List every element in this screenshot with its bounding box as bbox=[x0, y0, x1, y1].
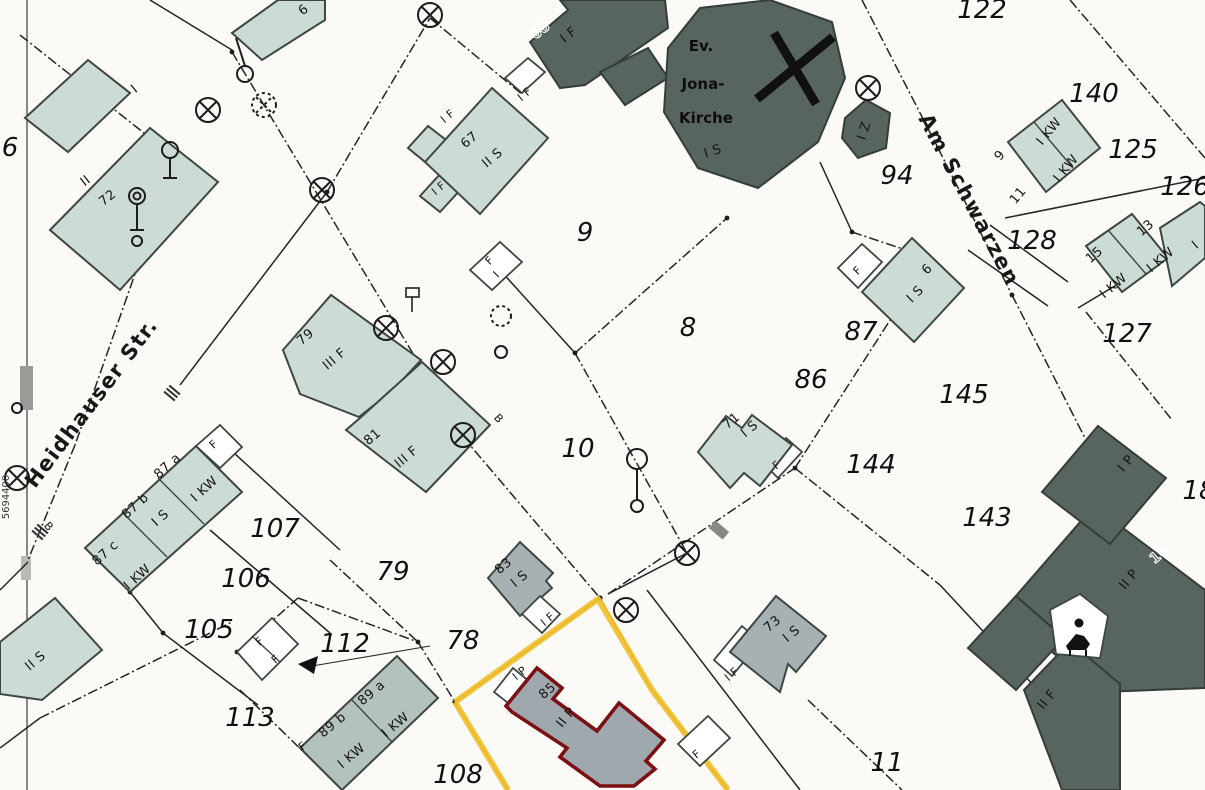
map-label-p6-edge: 6 bbox=[2, 133, 19, 163]
map-label-p126: 126 bbox=[1160, 172, 1205, 202]
map-label-p9: 9 bbox=[577, 218, 594, 248]
map-label-p108: 108 bbox=[433, 760, 483, 790]
map-label-p87: 87 bbox=[844, 317, 878, 347]
map-label-grid-coordinate: 5694400 bbox=[1, 475, 12, 520]
map-label-p107: 107 bbox=[250, 514, 300, 544]
map-label-p86: 86 bbox=[794, 365, 827, 395]
map-label-p112: 112 bbox=[320, 629, 370, 659]
map-label-p11: 11 bbox=[870, 748, 903, 778]
map-label-p94: 94 bbox=[880, 161, 913, 191]
map-label-p125: 125 bbox=[1108, 135, 1158, 165]
cadastral-map: 1221401251261281279498868714514414310107… bbox=[0, 0, 1205, 790]
map-label-church-jona: Jona- bbox=[681, 75, 725, 93]
map-label-p145: 145 bbox=[939, 380, 989, 410]
map-canvas: 1221401251261281279498868714514414310107… bbox=[0, 0, 1205, 790]
map-label-church-ev: Ev. bbox=[689, 37, 714, 55]
map-label-p144: 144 bbox=[846, 450, 896, 480]
map-label-p113: 113 bbox=[225, 703, 275, 733]
map-label-p127: 127 bbox=[1102, 319, 1152, 349]
map-label-p10: 10 bbox=[561, 434, 594, 464]
map-label-p106: 106 bbox=[221, 564, 271, 594]
map-label-p79: 79 bbox=[376, 557, 409, 587]
map-label-p18-edge: 18 bbox=[1182, 476, 1205, 506]
map-label-church-kirche: Kirche bbox=[679, 109, 733, 127]
map-label-p105: 105 bbox=[184, 615, 234, 645]
map-label-p78: 78 bbox=[446, 626, 479, 656]
map-label-p143: 143 bbox=[962, 503, 1012, 533]
map-label-p8: 8 bbox=[680, 313, 697, 343]
map-label-p140: 140 bbox=[1069, 79, 1119, 109]
map-label-p128: 128 bbox=[1007, 226, 1057, 256]
map-label-p122: 122 bbox=[957, 0, 1007, 25]
